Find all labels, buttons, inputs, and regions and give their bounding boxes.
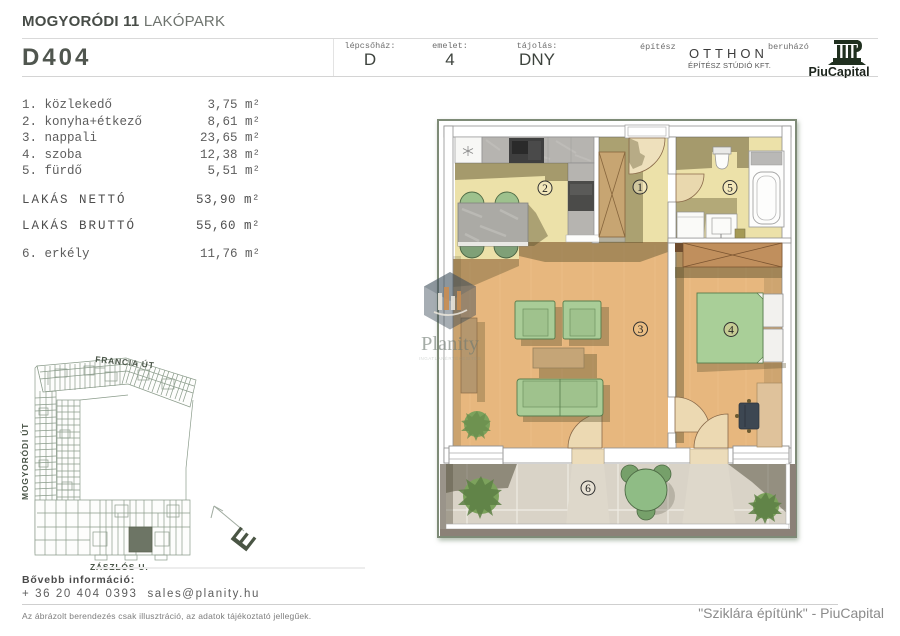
svg-text:1: 1	[637, 182, 643, 194]
svg-text:3: 3	[638, 324, 644, 336]
svg-text:6: 6	[585, 483, 591, 495]
svg-text:Planity: Planity	[421, 333, 480, 355]
svg-text:MOGYORÓDI ÚT: MOGYORÓDI ÚT	[19, 423, 30, 500]
svg-text:E: E	[225, 522, 262, 557]
svg-text:INGATLANÉRTÉKESÍTÉS: INGATLANÉRTÉKESÍTÉS	[419, 355, 482, 361]
svg-text:2: 2	[542, 183, 548, 195]
svg-text:4: 4	[728, 325, 734, 337]
svg-text:5: 5	[727, 183, 733, 195]
svg-text:PiuCapital: PiuCapital	[808, 65, 869, 78]
